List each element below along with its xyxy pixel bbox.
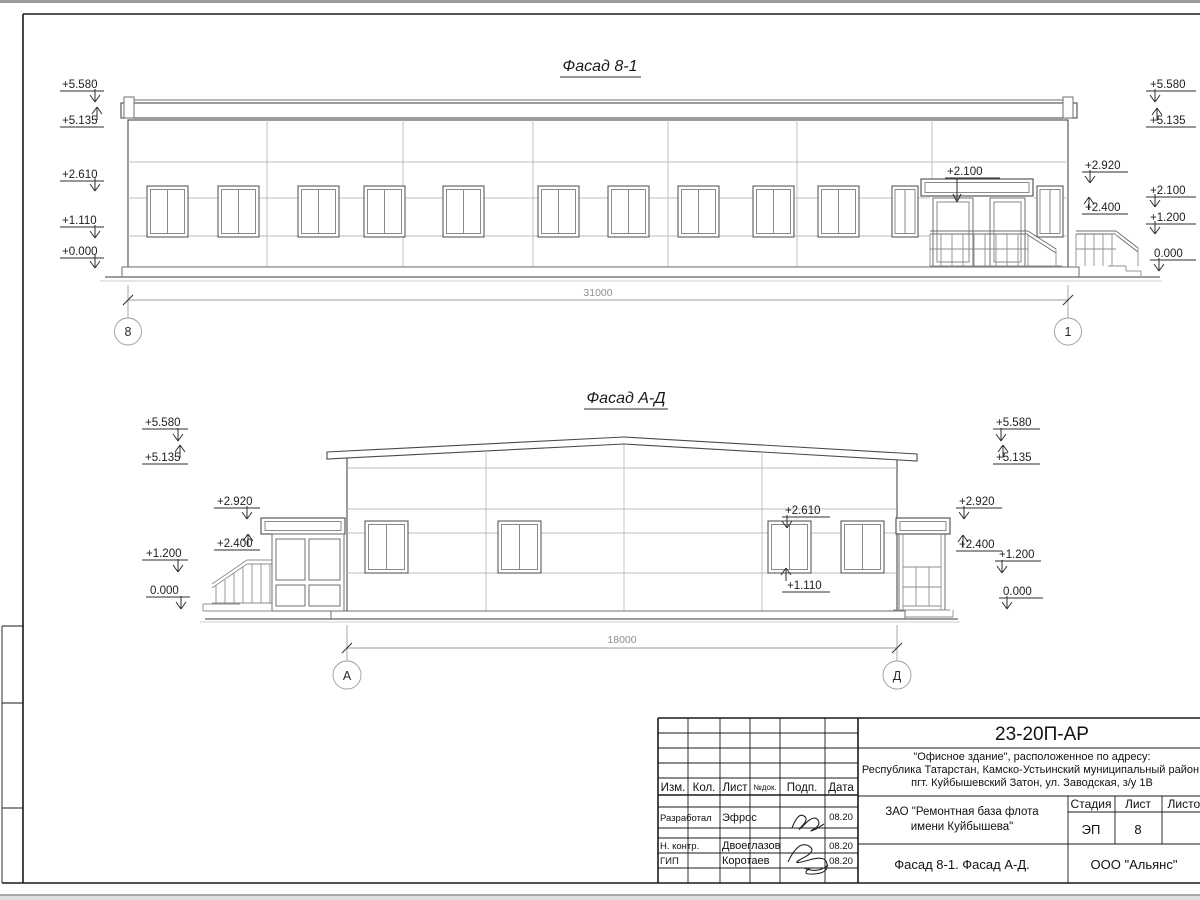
svg-text:Изм.: Изм. xyxy=(661,782,686,794)
svg-text:пгт. Куйбышевский Затон, ул. З: пгт. Куйбышевский Затон, ул. Заводская, … xyxy=(911,777,1153,789)
company-name: ООО "Альянс" xyxy=(1091,857,1178,872)
svg-text:+2.610: +2.610 xyxy=(785,505,821,517)
sheet-label: Лист xyxy=(1125,797,1152,811)
svg-text:Разработал: Разработал xyxy=(660,813,712,824)
facade-a-d-level-marks-left-far: +5.580 +5.135 +1.200 0.000 xyxy=(142,417,190,609)
dimension-label: 31000 xyxy=(583,287,612,299)
stage-label: Стадия xyxy=(1071,797,1112,811)
svg-text:+5.580: +5.580 xyxy=(996,417,1032,429)
facade-a-d-windows xyxy=(365,521,884,573)
title-block: Изм. Кол. Лист №док. Подп. Дата Разработ… xyxy=(658,718,1200,883)
svg-text:+5.580: +5.580 xyxy=(62,79,98,91)
svg-text:+2.400: +2.400 xyxy=(217,538,253,550)
svg-text:"Офисное здание", расположенно: "Офисное здание", расположенное по адрес… xyxy=(913,751,1150,763)
window xyxy=(753,186,794,237)
facade-a-d-title: Фасад А-Д xyxy=(586,390,665,407)
window xyxy=(365,521,408,573)
facade-8-1-dimension: 31000 8 1 xyxy=(115,285,1082,345)
svg-text:+2.400: +2.400 xyxy=(959,539,995,551)
svg-text:+5.135: +5.135 xyxy=(62,115,98,127)
window xyxy=(608,186,649,237)
facade-a-d-porch xyxy=(890,518,953,617)
svg-text:Коротаев: Коротаев xyxy=(722,855,770,867)
svg-text:+2.610: +2.610 xyxy=(62,169,98,181)
window xyxy=(498,521,541,573)
svg-text:08.20: 08.20 xyxy=(829,856,853,867)
svg-text:Эфрос: Эфрос xyxy=(722,812,757,824)
svg-text:+1.110: +1.110 xyxy=(62,215,97,227)
window-narrow xyxy=(1037,186,1063,237)
svg-text:Двоеглазов: Двоеглазов xyxy=(722,840,781,852)
svg-text:ЗАО "Ремонтная база флота: ЗАО "Ремонтная база флота xyxy=(885,806,1039,818)
level-arrow-down xyxy=(176,596,186,609)
axis-label-8: 8 xyxy=(125,325,132,339)
facade-8-1-level-marks-left: +5.580 +5.135 +2.610 +1.110 +0.000 xyxy=(60,79,104,268)
axis-label-d: Д xyxy=(893,669,902,683)
project-address: "Офисное здание", расположенное по адрес… xyxy=(862,751,1200,789)
facade-8-1-level-marks-right-near: +2.920 +2.400 xyxy=(1082,160,1128,214)
facade-8-1-drawing: Фасад 8-1 xyxy=(60,58,1196,345)
svg-text:+1.110: +1.110 xyxy=(787,580,822,592)
signature xyxy=(792,815,824,831)
level-arrow-down xyxy=(997,560,1007,573)
drawing-canvas: Фасад 8-1 xyxy=(0,0,1200,900)
stamp-row-developer: Разработал Эфрос 08.20 xyxy=(660,812,853,824)
window xyxy=(364,186,405,237)
svg-text:+5.135: +5.135 xyxy=(996,452,1032,464)
document-number: 23-20П-АР xyxy=(995,724,1089,745)
facade-a-d-vestibule xyxy=(203,518,345,611)
axis-label-a: А xyxy=(343,669,352,683)
stamp-row-ncontrol: Н. контр. Двоеглазов 08.20 xyxy=(660,840,853,852)
facade-a-d-level-marks-left-near: +2.920 +2.400 xyxy=(214,496,260,550)
window xyxy=(841,521,884,573)
svg-text:+5.135: +5.135 xyxy=(145,452,181,464)
facade-a-d-dimension: 18000 А Д xyxy=(333,625,911,689)
window xyxy=(218,186,259,237)
window xyxy=(147,186,188,237)
drawing-sheet: Фасад 8-1 xyxy=(0,0,1200,900)
sheets-label: Листов xyxy=(1168,797,1200,811)
level-arrow-down xyxy=(996,428,1006,441)
window xyxy=(298,186,339,237)
svg-text:0.000: 0.000 xyxy=(150,585,179,597)
signature xyxy=(788,845,828,874)
window-narrow xyxy=(892,186,918,237)
level-arrow-down xyxy=(173,559,183,572)
svg-text:+1.200: +1.200 xyxy=(999,549,1035,561)
sheet-value: 8 xyxy=(1134,822,1141,837)
window xyxy=(443,186,484,237)
facade-8-1-side-porch xyxy=(1076,231,1141,276)
facade-8-1-level-marks-right-far: +5.580 +5.135 +2.100 +1.200 0.000 xyxy=(1146,79,1196,271)
window xyxy=(538,186,579,237)
dimension-label: 18000 xyxy=(607,634,636,646)
window xyxy=(678,186,719,237)
svg-text:0.000: 0.000 xyxy=(1154,248,1183,260)
svg-text:+5.580: +5.580 xyxy=(145,417,181,429)
svg-text:+2.100: +2.100 xyxy=(947,166,983,178)
svg-text:Подп.: Подп. xyxy=(787,782,818,794)
facade-a-d-level-marks-right-far: +5.580 +5.135 +1.200 0.000 xyxy=(993,417,1043,609)
svg-text:+0.000: +0.000 xyxy=(62,246,98,258)
level-arrow-down xyxy=(173,428,183,441)
svg-text:№док.: №док. xyxy=(753,783,776,792)
svg-text:Лист: Лист xyxy=(723,782,749,794)
window xyxy=(768,521,811,573)
stamp-row-gip: ГИП Коротаев 08.20 xyxy=(660,855,853,867)
svg-text:+2.400: +2.400 xyxy=(1085,202,1121,214)
facade-a-d-level-marks-right-near: +2.920 +2.400 xyxy=(956,496,1002,551)
facade-8-1-title: Фасад 8-1 xyxy=(563,58,638,75)
svg-text:08.20: 08.20 xyxy=(829,841,853,852)
stage-value: ЭП xyxy=(1082,822,1101,837)
client-name: ЗАО "Ремонтная база флота имени Куйбышев… xyxy=(885,806,1039,833)
svg-text:Н. контр.: Н. контр. xyxy=(660,841,699,852)
svg-text:Дата: Дата xyxy=(828,782,854,794)
window xyxy=(818,186,859,237)
facade-a-d-drawing: Фасад А-Д +2.610 xyxy=(142,390,1043,689)
sheet-drawing-title: Фасад 8-1. Фасад А-Д. xyxy=(894,857,1030,872)
svg-text:Республика Татарстан, Камско-У: Республика Татарстан, Камско-Устьинский … xyxy=(862,764,1200,776)
svg-text:+1.200: +1.200 xyxy=(146,548,182,560)
svg-text:+5.135: +5.135 xyxy=(1150,115,1186,127)
axis-label-1: 1 xyxy=(1065,325,1072,339)
svg-text:Кол.: Кол. xyxy=(693,782,716,794)
svg-text:ГИП: ГИП xyxy=(660,856,679,867)
svg-text:08.20: 08.20 xyxy=(829,812,853,823)
svg-text:имени Куйбышева": имени Куйбышева" xyxy=(911,821,1014,833)
